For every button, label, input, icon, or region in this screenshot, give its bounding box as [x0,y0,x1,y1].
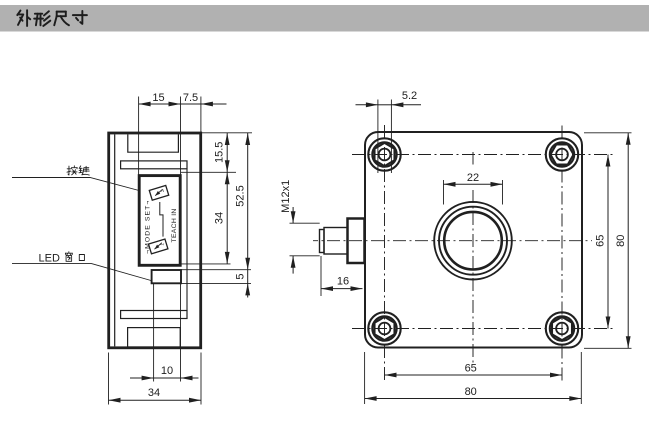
svg-text:16: 16 [337,276,349,288]
svg-text:34: 34 [148,387,160,399]
svg-text:LED: LED [39,253,60,265]
svg-text:15.5: 15.5 [214,142,226,163]
svg-text:M12x1: M12x1 [280,180,292,213]
svg-text:15: 15 [152,92,164,104]
svg-text:22: 22 [467,172,479,184]
svg-text:7.5: 7.5 [183,92,198,104]
svg-text:80: 80 [465,386,477,398]
svg-text:2: 2 [160,189,165,192]
svg-text:1: 1 [159,243,164,246]
svg-text:10: 10 [161,365,173,377]
svg-text:80: 80 [615,235,627,247]
svg-text:52.5: 52.5 [234,185,246,206]
svg-text:65: 65 [465,363,477,375]
svg-text:34: 34 [214,212,226,224]
svg-text:5.2: 5.2 [402,90,417,102]
svg-text:¬MODE SET¬: ¬MODE SET¬ [145,200,152,254]
svg-text:TEACH IN: TEACH IN [171,208,178,242]
svg-text:65: 65 [595,235,607,247]
svg-text:5: 5 [234,273,246,279]
